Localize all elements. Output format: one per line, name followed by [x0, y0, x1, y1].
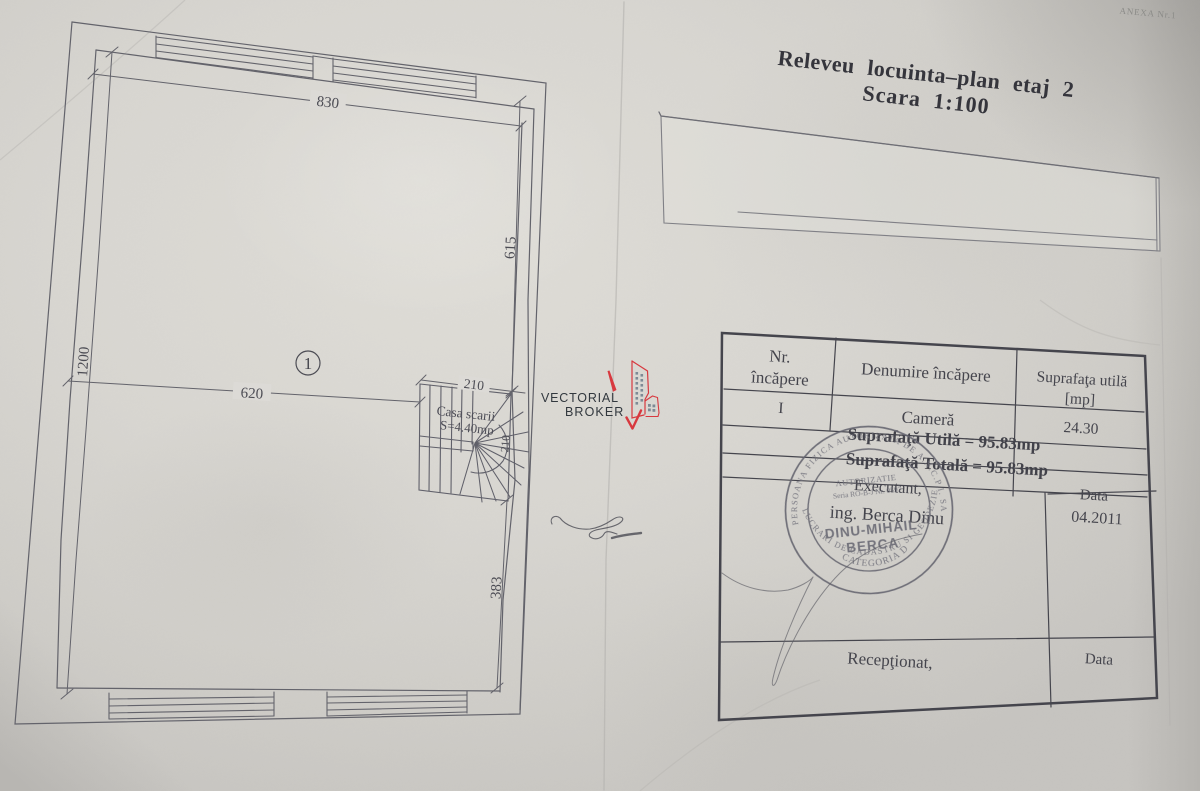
svg-text:383: 383: [488, 576, 505, 599]
svg-text:1: 1: [304, 354, 313, 373]
svg-text:620: 620: [240, 385, 263, 402]
svg-text:Cameră: Cameră: [901, 407, 955, 429]
svg-text:[mp]: [mp]: [1064, 390, 1095, 409]
svg-text:830: 830: [316, 94, 340, 113]
svg-text:210: 210: [499, 434, 512, 452]
svg-text:Nr.: Nr.: [769, 346, 791, 366]
svg-text:210: 210: [463, 376, 485, 393]
svg-text:BROKER: BROKER: [565, 405, 624, 419]
svg-text:Data: Data: [1079, 487, 1109, 505]
svg-text:1200: 1200: [75, 346, 93, 377]
svg-text:ANEXA Nr.1: ANEXA Nr.1: [1119, 6, 1177, 21]
svg-text:Suprafaţa utilă: Suprafaţa utilă: [1036, 368, 1128, 390]
svg-text:VECTORIAL: VECTORIAL: [541, 391, 619, 405]
svg-text:04.2011: 04.2011: [1071, 509, 1123, 529]
svg-text:Data: Data: [1084, 651, 1114, 669]
svg-text:Denumire încăpere: Denumire încăpere: [861, 359, 992, 385]
svg-text:24.30: 24.30: [1063, 419, 1099, 438]
svg-text:Recepţionat,: Recepţionat,: [847, 649, 933, 673]
svg-text:I: I: [778, 400, 784, 417]
svg-text:615: 615: [502, 236, 519, 259]
svg-text:încăpere: încăpere: [750, 367, 810, 389]
